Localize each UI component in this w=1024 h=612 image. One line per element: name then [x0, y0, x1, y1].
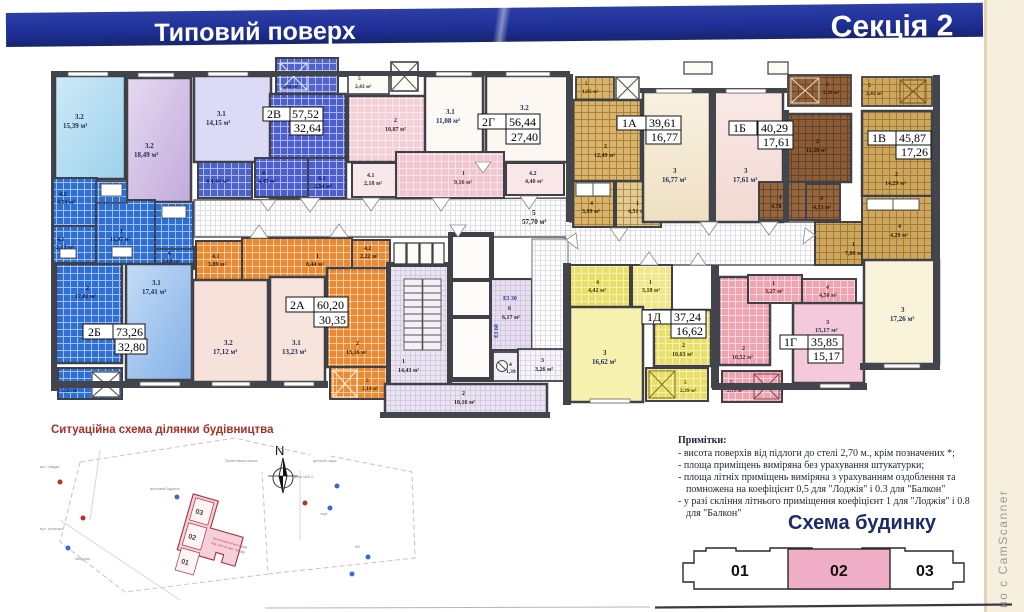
svg-text:4,40 м²: 4,40 м²: [525, 179, 543, 185]
svg-text:13,16 м²: 13,16 м²: [346, 350, 367, 356]
svg-text:1: 1: [402, 359, 405, 365]
svg-text:2Г: 2Г: [482, 115, 495, 129]
svg-text:11,38 м²: 11,38 м²: [806, 148, 827, 154]
svg-text:- площа літніх приміщень вимір: - площа літніх приміщень виміряна з урах…: [678, 472, 956, 483]
svg-text:2,43 м²: 2,43 м²: [866, 91, 883, 97]
svg-text:4,29 м²: 4,29 м²: [890, 233, 908, 239]
svg-text:14,15 м²: 14,15 м²: [206, 119, 230, 127]
svg-text:2Б: 2Б: [88, 325, 101, 339]
svg-text:17,26: 17,26: [901, 145, 928, 159]
svg-text:вул. Чавдар: вул. Чавдар: [40, 465, 60, 469]
svg-text:2: 2: [604, 144, 607, 150]
svg-text:3,89 м²: 3,89 м²: [208, 262, 226, 268]
svg-text:73,26: 73,26: [116, 325, 143, 339]
svg-text:2,23 м²: 2,23 м²: [62, 388, 79, 394]
svg-text:2: 2: [895, 172, 898, 178]
svg-text:2,54 м²: 2,54 м²: [314, 184, 332, 190]
svg-text:3.2: 3.2: [75, 113, 84, 121]
svg-text:8,44 м²: 8,44 м²: [306, 262, 324, 268]
svg-text:5: 5: [684, 380, 687, 386]
svg-text:2: 2: [742, 346, 745, 352]
svg-text:6,17 м²: 6,17 м²: [502, 315, 520, 321]
svg-text:10,63 м²: 10,63 м²: [672, 352, 693, 358]
svg-text:4: 4: [509, 362, 512, 368]
svg-text:1: 1: [649, 280, 652, 286]
svg-text:дитячий садок: дитячий садок: [313, 459, 337, 463]
svg-text:3: 3: [673, 167, 677, 175]
svg-text:17,26 м²: 17,26 м²: [890, 315, 914, 323]
svg-text:02: 02: [830, 563, 848, 580]
svg-text:4.1: 4.1: [367, 173, 375, 179]
svg-text:16,62: 16,62: [676, 324, 703, 338]
svg-text:1Д: 1Д: [647, 310, 661, 324]
svg-text:3.2: 3.2: [224, 339, 233, 347]
svg-text:2: 2: [394, 118, 397, 124]
svg-text:16,77: 16,77: [651, 130, 678, 144]
svg-text:4 4,44 м²: 4 4,44 м²: [206, 179, 229, 185]
svg-text:1: 1: [120, 229, 123, 235]
svg-text:18,49 м²: 18,49 м²: [134, 151, 158, 159]
svg-text:Схема будинку: Схема будинку: [788, 512, 937, 534]
svg-text:2,14 м²: 2,14 м²: [362, 386, 379, 392]
svg-text:3,26 м²: 3,26 м²: [535, 367, 553, 373]
svg-text:4: 4: [590, 201, 593, 207]
svg-text:60,20: 60,20: [317, 298, 344, 312]
svg-text:3.2: 3.2: [520, 104, 529, 112]
svg-text:56,44: 56,44: [509, 115, 536, 129]
svg-text:2: 2: [462, 391, 465, 397]
svg-text:2: 2: [356, 341, 359, 347]
svg-text:3.1: 3.1: [152, 279, 161, 287]
svg-text:15,17 м²: 15,17 м²: [815, 327, 838, 334]
svg-text:17,41 м²: 17,41 м²: [142, 288, 166, 296]
svg-text:1,85 м²: 1,85 м²: [582, 89, 599, 95]
svg-text:школа №314: школа №314: [292, 475, 313, 479]
svg-text:5: 5: [366, 378, 369, 384]
svg-text:1В: 1В: [872, 131, 886, 145]
svg-text:13,23 м²: 13,23 м²: [282, 348, 306, 356]
svg-text:2,43 м²: 2,43 м²: [282, 84, 299, 90]
svg-text:ЕІ 60: ЕІ 60: [494, 324, 500, 338]
svg-text:32,64: 32,64: [294, 121, 321, 135]
svg-text:2,43 м²: 2,43 м²: [355, 84, 372, 90]
svg-text:3,18 м²: 3,18 м²: [642, 288, 660, 294]
svg-text:Проектована школа: Проектована школа: [225, 459, 257, 463]
svg-text:но с CamScanner: но с CamScanner: [996, 490, 1010, 609]
svg-text:01: 01: [731, 563, 749, 580]
svg-text:4.2: 4.2: [364, 246, 372, 252]
svg-text:3: 3: [901, 306, 905, 314]
svg-text:4: 4: [596, 280, 599, 286]
svg-text:4.1: 4.1: [57, 237, 65, 243]
svg-text:03: 03: [916, 563, 934, 580]
svg-text:вул. Урлівська: вул. Урлівська: [40, 527, 63, 531]
svg-text:помножена на коефіцієнт 0,5 дл: помножена на коефіцієнт 0,5 для "Лоджія"…: [686, 484, 945, 495]
svg-text:32,80: 32,80: [118, 340, 145, 354]
svg-text:11,08 м²: 11,08 м²: [436, 117, 460, 125]
svg-text:3.1: 3.1: [446, 108, 455, 116]
svg-text:1: 1: [852, 242, 855, 248]
svg-text:12,49 м²: 12,49 м²: [594, 153, 615, 159]
svg-text:45,87: 45,87: [899, 131, 926, 145]
svg-text:4,53 м²: 4,53 м²: [57, 200, 75, 206]
svg-text:3,27 м²: 3,27 м²: [765, 289, 783, 295]
svg-text:4.2: 4.2: [59, 192, 67, 198]
svg-text:4: 4: [262, 171, 265, 177]
svg-text:37,24: 37,24: [674, 310, 701, 324]
svg-text:15,39 м²: 15,39 м²: [63, 122, 87, 130]
svg-text:1: 1: [772, 281, 775, 287]
svg-text:2,22 м²: 2,22 м²: [360, 254, 378, 260]
svg-text:2В: 2В: [267, 107, 281, 121]
svg-text:17,01 м²: 17,01 м²: [75, 294, 96, 300]
svg-text:1: 1: [779, 195, 782, 201]
svg-text:4,13 м²: 4,13 м²: [813, 205, 831, 211]
svg-text:3.1: 3.1: [292, 339, 301, 347]
svg-text:1: 1: [316, 254, 319, 260]
svg-text:ЕІ 30: ЕІ 30: [503, 296, 517, 302]
svg-text:Примітки:: Примітки:: [678, 435, 726, 446]
svg-text:2,39 м²: 2,39 м²: [680, 388, 697, 394]
svg-text:4: 4: [820, 196, 823, 202]
svg-text:3: 3: [744, 167, 748, 175]
svg-text:3: 3: [603, 349, 607, 357]
svg-text:4.1: 4.1: [212, 254, 220, 260]
svg-text:4: 4: [826, 285, 829, 291]
svg-text:- площа приміщень виміряна без: - площа приміщень виміряна без урахуванн…: [678, 460, 924, 471]
svg-text:парк: парк: [320, 512, 328, 516]
svg-text:для "Балкон": для "Балкон": [686, 508, 741, 519]
svg-text:10,16 м²: 10,16 м²: [454, 400, 475, 406]
svg-text:1: 1: [636, 201, 639, 207]
svg-text:1Г: 1Г: [784, 335, 797, 349]
svg-text:5: 5: [532, 209, 536, 217]
svg-text:- висота поверхів від підлоги: - висота поверхів від підлоги до стелі 2…: [678, 448, 955, 459]
svg-text:1Б: 1Б: [733, 121, 746, 135]
svg-text:5: 5: [826, 82, 829, 88]
svg-text:2А: 2А: [290, 298, 305, 312]
svg-text:житловий будинок: житловий будинок: [150, 487, 180, 491]
svg-text:57,52: 57,52: [292, 107, 319, 121]
svg-text:9,16 м²: 9,16 м²: [454, 180, 472, 186]
svg-text:2,18 м²: 2,18 м²: [364, 181, 382, 187]
svg-text:30,35: 30,35: [319, 313, 346, 327]
svg-text:ЖК: ЖК: [355, 545, 361, 549]
svg-text:17,12 м²: 17,12 м²: [213, 348, 237, 356]
svg-text:11,97 м²: 11,97 м²: [110, 237, 131, 243]
svg-text:39,61: 39,61: [649, 116, 676, 130]
svg-text:40,29: 40,29: [761, 121, 788, 135]
svg-text:2: 2: [86, 286, 89, 292]
svg-text:57,70 м²: 57,70 м²: [522, 218, 546, 226]
svg-text:10,52 м²: 10,52 м²: [732, 355, 753, 361]
svg-text:4.1: 4.1: [318, 176, 326, 182]
svg-text:5: 5: [868, 83, 871, 89]
svg-text:забудова: забудова: [75, 557, 90, 561]
svg-text:15,17: 15,17: [813, 349, 840, 363]
svg-text:6: 6: [508, 306, 511, 312]
svg-text:35,85: 35,85: [811, 335, 838, 349]
svg-text:10,87 м²: 10,87 м²: [385, 127, 406, 133]
svg-text:N: N: [275, 443, 284, 458]
svg-text:16,62 м²: 16,62 м²: [592, 358, 616, 366]
svg-text:Ситуаційна схема ділянки будів: Ситуаційна схема ділянки будівництва: [51, 424, 274, 436]
svg-text:3.2: 3.2: [145, 142, 154, 150]
svg-text:2: 2: [682, 343, 685, 349]
svg-text:5: 5: [585, 81, 588, 87]
svg-text:4: 4: [898, 224, 901, 230]
svg-text:16,77 м²: 16,77 м²: [662, 176, 686, 184]
svg-text:- у разі скління літнього прим: - у разі скління літнього приміщення кое…: [678, 496, 970, 507]
svg-text:2: 2: [816, 139, 819, 145]
svg-text:1: 1: [462, 171, 465, 177]
svg-text:2,39 м²: 2,39 м²: [823, 90, 840, 96]
svg-text:3.1: 3.1: [217, 110, 226, 118]
svg-text:17,61: 17,61: [763, 135, 790, 149]
svg-text:4,45 м²: 4,45 м²: [258, 179, 276, 185]
svg-text:4,42 м²: 4,42 м²: [588, 288, 606, 294]
svg-text:5: 5: [358, 76, 361, 82]
svg-text:1А: 1А: [622, 116, 637, 130]
svg-text:14,29 м²: 14,29 м²: [885, 181, 906, 187]
svg-text:14,43 м²: 14,43 м²: [398, 368, 419, 374]
svg-text:7,80 м²: 7,80 м²: [845, 251, 863, 257]
svg-text:27,40: 27,40: [511, 130, 538, 144]
svg-text:4.2: 4.2: [529, 171, 537, 177]
svg-text:3,99 м²: 3,99 м²: [582, 209, 600, 215]
svg-text:3: 3: [541, 358, 544, 364]
svg-text:6: 6: [168, 251, 171, 257]
svg-text:17,61 м²: 17,61 м²: [733, 176, 757, 184]
svg-text:4,50 м²: 4,50 м²: [819, 293, 837, 299]
